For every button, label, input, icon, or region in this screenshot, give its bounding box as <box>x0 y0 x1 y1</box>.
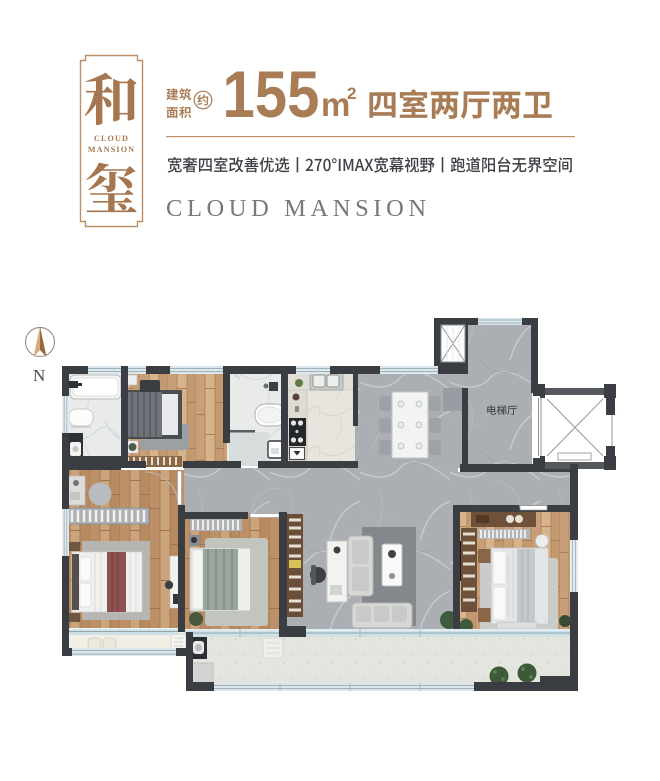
svg-text:N: N <box>33 366 45 385</box>
svg-text:m: m <box>321 86 350 123</box>
svg-text:155: 155 <box>223 59 320 132</box>
svg-text:2: 2 <box>347 84 356 103</box>
svg-text:CLOUD MANSION: CLOUD MANSION <box>166 195 431 222</box>
